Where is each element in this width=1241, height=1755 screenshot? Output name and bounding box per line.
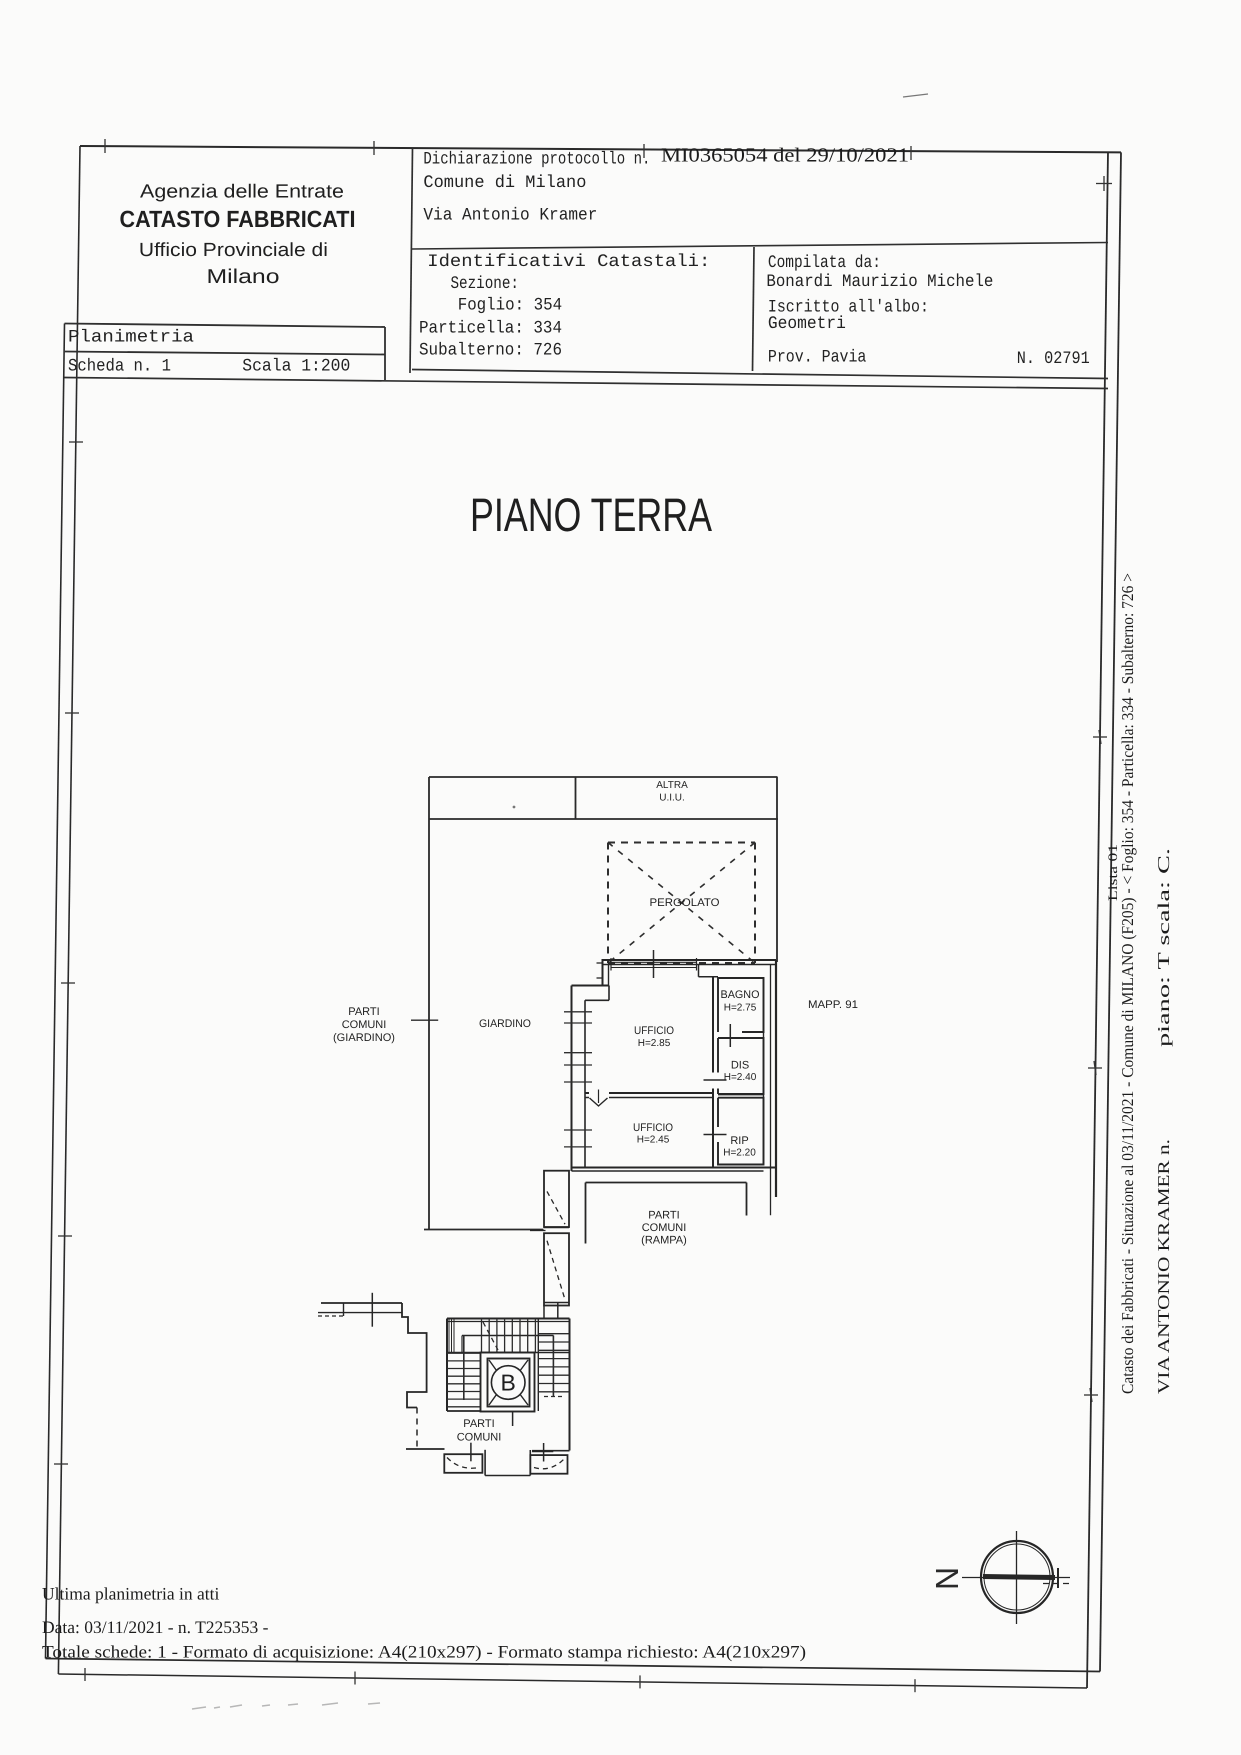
svg-text:Milano: Milano	[207, 266, 280, 288]
svg-text:Bonardi Maurizio Michele: Bonardi Maurizio Michele	[766, 272, 993, 292]
svg-text:H=2.85: H=2.85	[638, 1038, 671, 1049]
svg-text:Geometri: Geometri	[768, 314, 846, 334]
svg-text:Foglio: 354: Foglio: 354	[458, 296, 563, 316]
svg-text:N: N	[929, 1567, 965, 1590]
svg-text:PARTI: PARTI	[348, 1006, 379, 1018]
svg-text:Ufficio Provinciale di: Ufficio Provinciale di	[139, 240, 328, 261]
svg-text:UFFICIO: UFFICIO	[633, 1122, 673, 1134]
svg-text:H=2.45: H=2.45	[637, 1135, 670, 1146]
svg-text:Particella: 334: Particella: 334	[419, 318, 562, 338]
svg-text:piano: T scala: C.: piano: T scala: C.	[1154, 848, 1173, 1047]
svg-text:PERGOLATO: PERGOLATO	[650, 897, 720, 909]
svg-text:Totale schede: 1 - Formato di: Totale schede: 1 - Formato di acquisizio…	[42, 1642, 806, 1662]
svg-text:MAPP. 91: MAPP. 91	[808, 999, 858, 1011]
svg-text:MI0365054 del 29/10/2021: MI0365054 del 29/10/2021	[661, 145, 909, 167]
svg-text:H=2.20: H=2.20	[723, 1148, 756, 1159]
svg-text:N. 02791: N. 02791	[1017, 349, 1090, 369]
svg-text:Dichiarazione protocollo n.: Dichiarazione protocollo n.	[423, 150, 650, 170]
svg-text:(RAMPA): (RAMPA)	[641, 1235, 687, 1247]
svg-text:ALTRA: ALTRA	[656, 780, 688, 791]
svg-text:H=2.40: H=2.40	[724, 1072, 757, 1083]
svg-text:PARTI: PARTI	[648, 1210, 679, 1222]
svg-text:Prov. Pavia: Prov. Pavia	[768, 348, 867, 368]
svg-text:PIANO TERRA: PIANO TERRA	[470, 488, 712, 541]
svg-text:PARTI: PARTI	[463, 1418, 494, 1430]
svg-text:Planimetria: Planimetria	[68, 327, 194, 347]
svg-text:BAGNO: BAGNO	[721, 989, 760, 1001]
svg-text:COMUNI: COMUNI	[642, 1222, 687, 1234]
svg-text:(GIARDINO): (GIARDINO)	[333, 1032, 395, 1044]
svg-text:U.I.U.: U.I.U.	[659, 793, 685, 804]
svg-text:Agenzia delle Entrate: Agenzia delle Entrate	[140, 182, 344, 203]
svg-text:COMUNI: COMUNI	[457, 1432, 502, 1444]
svg-text:UFFICIO: UFFICIO	[634, 1025, 674, 1037]
svg-text:Catasto dei Fabbricati - Situa: Catasto dei Fabbricati - Situazione al 0…	[1118, 573, 1137, 1394]
svg-text:Via Antonio Kramer: Via Antonio Kramer	[423, 206, 597, 226]
svg-text:Subalterno: 726: Subalterno: 726	[419, 341, 562, 361]
svg-text:Identificativi Catastali:: Identificativi Catastali:	[427, 252, 710, 272]
svg-text:Scheda n. 1: Scheda n. 1	[68, 356, 171, 376]
svg-text:GIARDINO: GIARDINO	[479, 1018, 531, 1030]
svg-text:Data: 03/11/2021 - n. T225353: Data: 03/11/2021 - n. T225353 -	[42, 1617, 269, 1637]
svg-text:Sezione:: Sezione:	[451, 274, 520, 294]
svg-text:B: B	[501, 1370, 516, 1396]
svg-text:VIA ANTONIO KRAMER n.: VIA ANTONIO KRAMER n.	[1154, 1139, 1173, 1394]
svg-text:RIP: RIP	[730, 1135, 748, 1147]
svg-text:Compilata da:: Compilata da:	[768, 253, 881, 273]
svg-text:Ultima planimetria in atti: Ultima planimetria in atti	[42, 1584, 220, 1604]
svg-text:CATASTO FABBRICATI: CATASTO FABBRICATI	[120, 206, 356, 232]
svg-text:Lista 01: Lista 01	[1105, 844, 1120, 901]
svg-text:DIS: DIS	[731, 1060, 749, 1072]
svg-text:Comune di Milano: Comune di Milano	[423, 173, 586, 193]
svg-text:H=2.75: H=2.75	[724, 1003, 757, 1014]
svg-text:Scala 1:200: Scala 1:200	[242, 356, 350, 376]
svg-text:COMUNI: COMUNI	[342, 1019, 387, 1031]
